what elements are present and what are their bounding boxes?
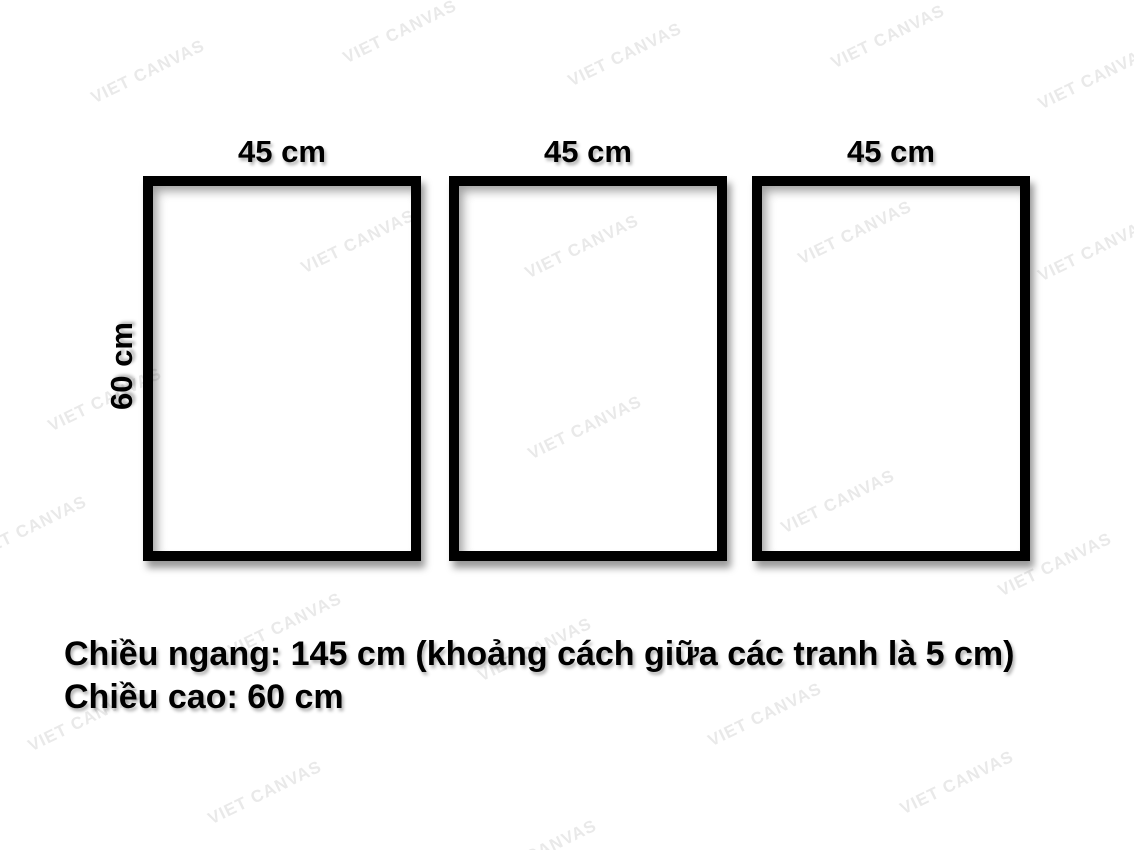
total-width-text: Chiều ngang: 145 cm (khoảng cách giữa cá… xyxy=(64,633,1014,676)
frame-3-width-label: 45 cm xyxy=(752,134,1030,170)
frame-2-width-label: 45 cm xyxy=(449,134,727,170)
frame-height-label: 60 cm xyxy=(104,322,140,410)
frame-2-outline xyxy=(449,176,727,561)
canvas-size-diagram: VIET CANVASVIET CANVASVIET CANVASVIET CA… xyxy=(0,0,1134,850)
watermark-text: VIET CANVAS xyxy=(1035,214,1134,286)
frame-1-outline xyxy=(143,176,421,561)
watermark-text: VIET CANVAS xyxy=(88,36,208,108)
watermark-text: VIET CANVAS xyxy=(340,0,460,68)
frame-1-width-label: 45 cm xyxy=(143,134,421,170)
frame-3-outline xyxy=(752,176,1030,561)
watermark-text: VIET CANVAS xyxy=(1035,42,1134,114)
watermark-text: VIET CANVAS xyxy=(897,747,1017,819)
watermark-text: VIET CANVAS xyxy=(828,1,948,73)
watermark-text: VIET CANVAS xyxy=(565,19,685,91)
watermark-text: VIET CANVAS xyxy=(0,492,90,564)
total-height-text: Chiều cao: 60 cm xyxy=(64,676,1014,719)
watermark-text: VIET CANVAS xyxy=(205,757,325,829)
dimensions-description: Chiều ngang: 145 cm (khoảng cách giữa cá… xyxy=(64,633,1014,719)
watermark-text: VIET CANVAS xyxy=(480,816,600,850)
